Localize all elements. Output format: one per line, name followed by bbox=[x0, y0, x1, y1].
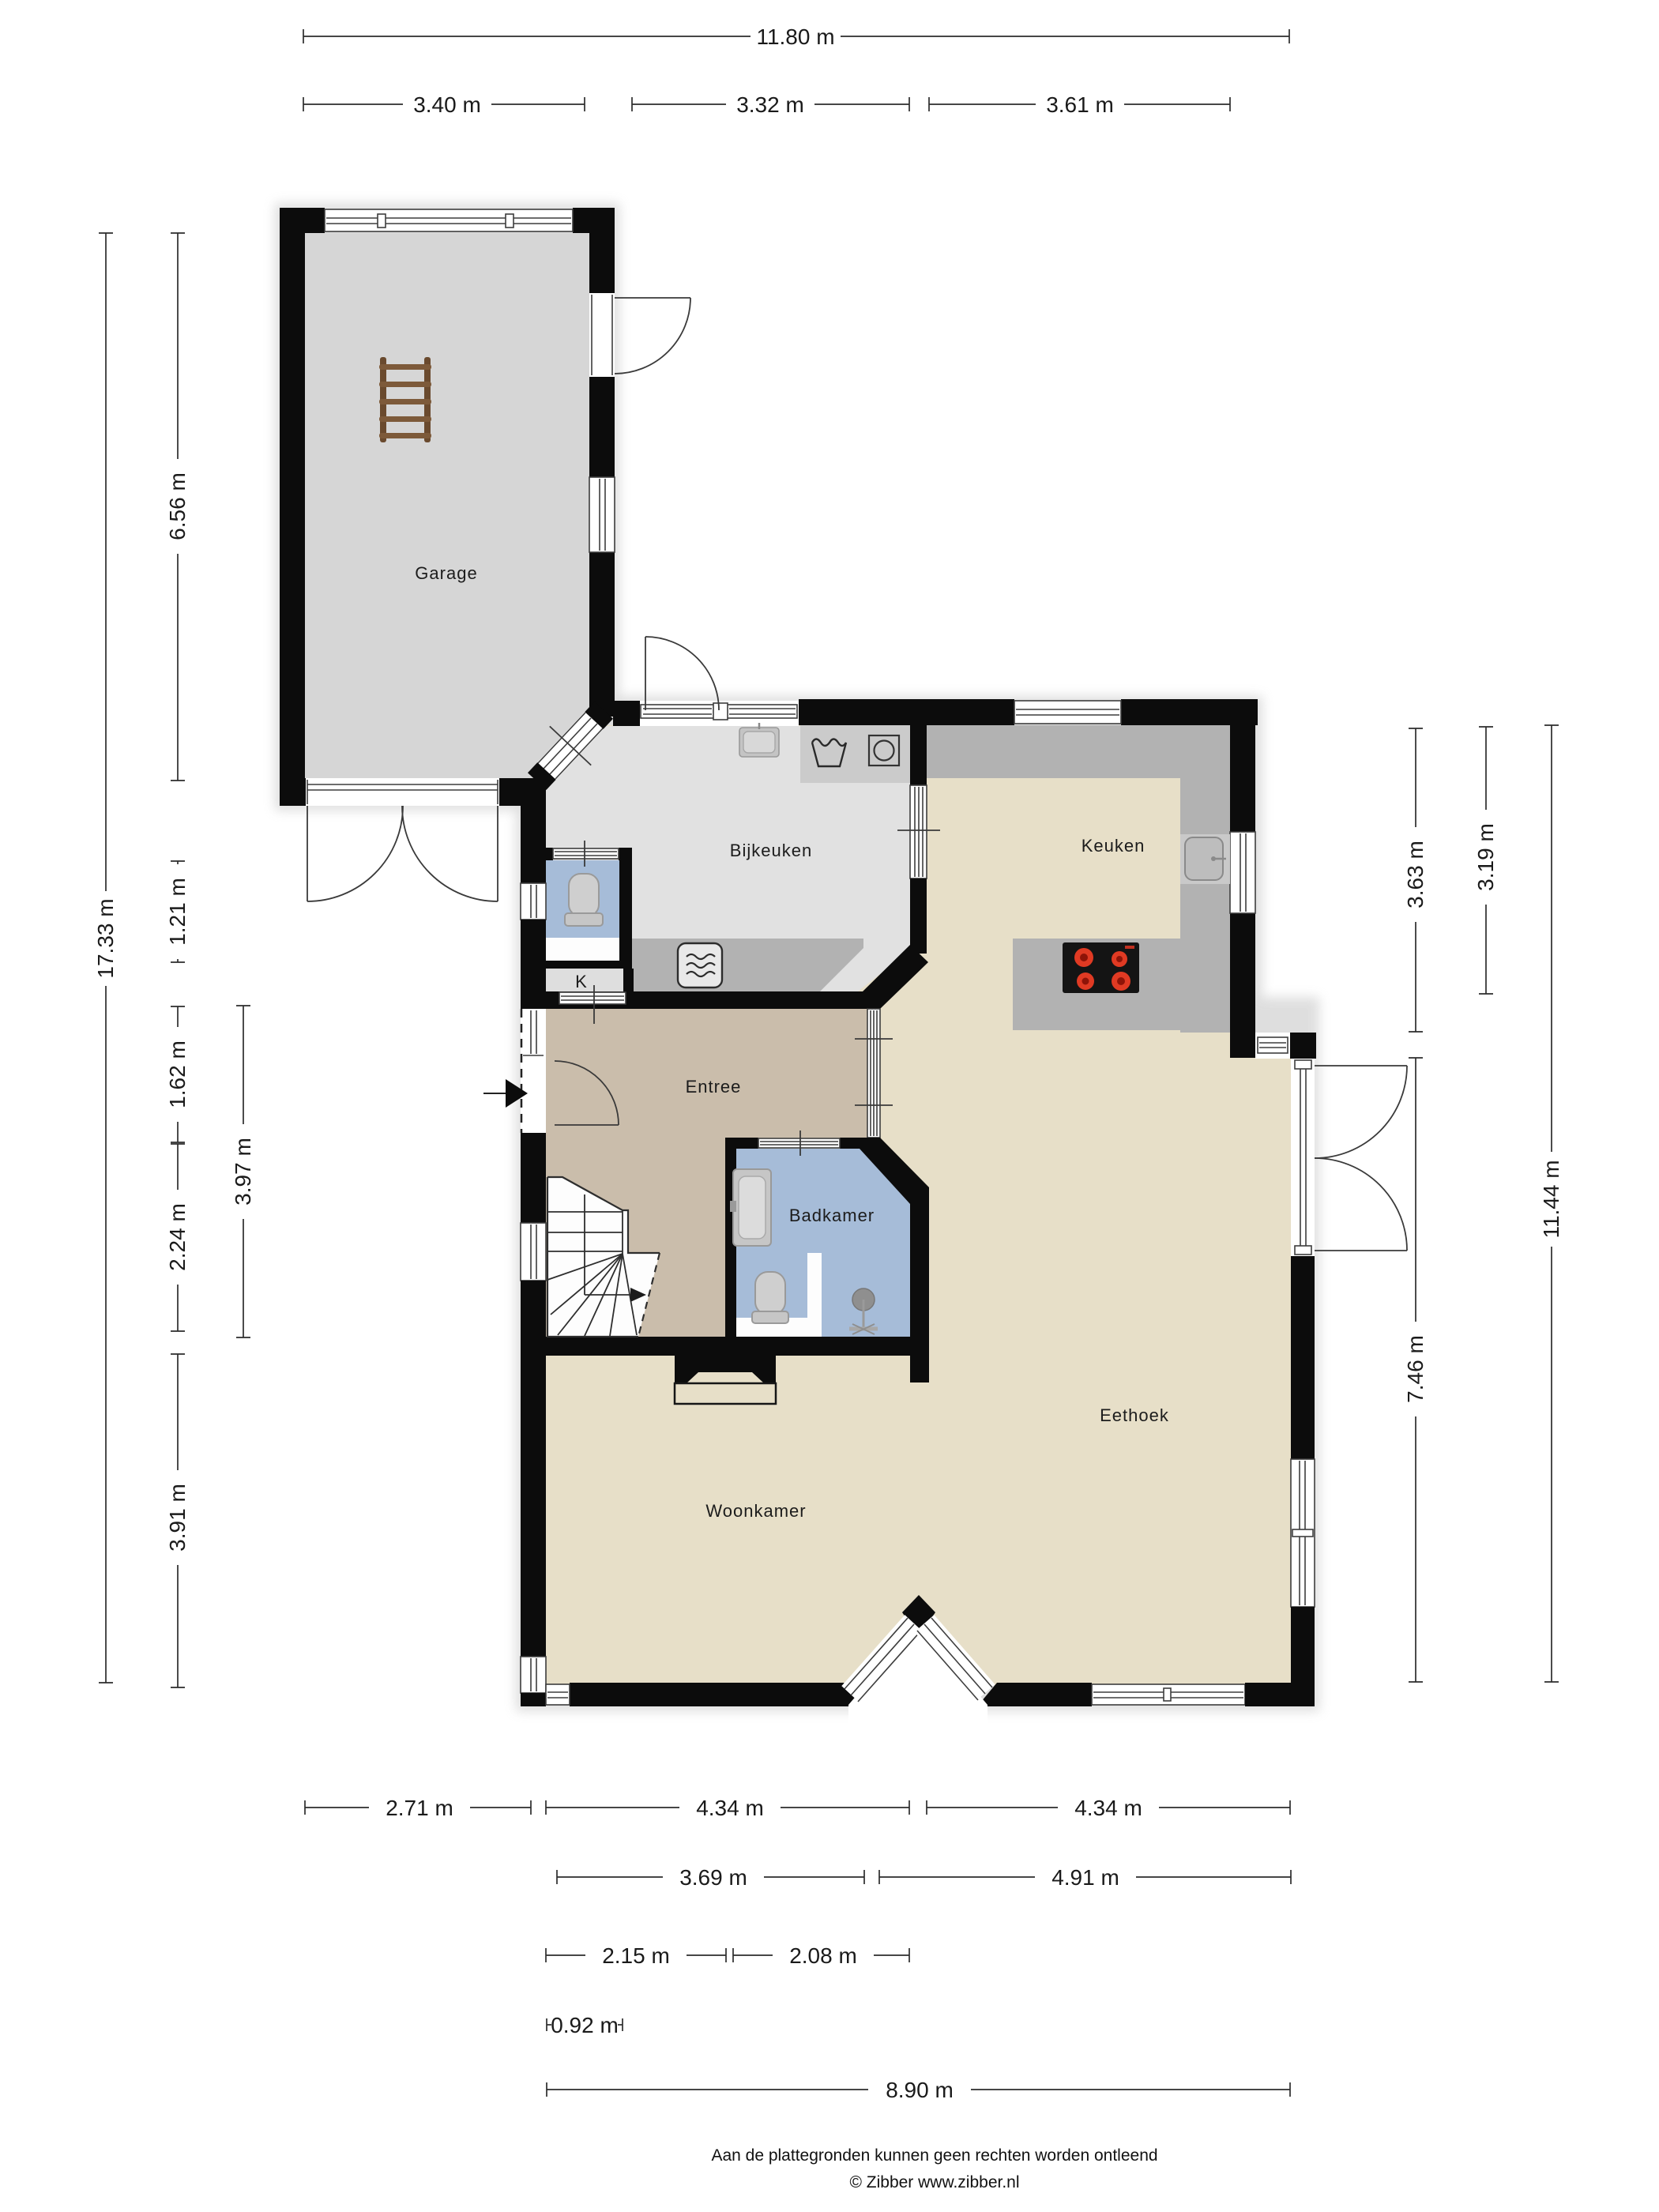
svg-text:2.24 m: 2.24 m bbox=[165, 1203, 190, 1271]
svg-text:6.56 m: 6.56 m bbox=[165, 472, 190, 540]
svg-text:1.62 m: 1.62 m bbox=[165, 1040, 190, 1108]
svg-text:4.34 m: 4.34 m bbox=[1074, 1796, 1142, 1820]
svg-text:3.91 m: 3.91 m bbox=[165, 1484, 190, 1552]
svg-text:11.80 m: 11.80 m bbox=[756, 24, 834, 49]
svg-text:Entree: Entree bbox=[686, 1077, 742, 1097]
svg-text:1.21 m: 1.21 m bbox=[165, 878, 190, 946]
svg-text:Keuken: Keuken bbox=[1082, 836, 1145, 856]
svg-text:Eethoek: Eethoek bbox=[1100, 1405, 1169, 1425]
svg-text:4.34 m: 4.34 m bbox=[696, 1796, 764, 1820]
svg-text:7.46 m: 7.46 m bbox=[1403, 1335, 1428, 1403]
svg-text:17.33 m: 17.33 m bbox=[93, 898, 118, 978]
svg-text:3.63 m: 3.63 m bbox=[1403, 841, 1428, 908]
svg-text:4.91 m: 4.91 m bbox=[1051, 1865, 1119, 1890]
svg-text:Badkamer: Badkamer bbox=[789, 1206, 875, 1225]
svg-text:0.92 m: 0.92 m bbox=[551, 2013, 619, 2037]
svg-text:11.44 m: 11.44 m bbox=[1539, 1160, 1563, 1238]
svg-text:© Zibber www.zibber.nl: © Zibber www.zibber.nl bbox=[849, 2173, 1019, 2191]
svg-text:K: K bbox=[575, 972, 588, 991]
svg-text:3.40 m: 3.40 m bbox=[413, 92, 481, 117]
svg-text:3.97 m: 3.97 m bbox=[231, 1138, 255, 1206]
svg-text:Garage: Garage bbox=[415, 563, 477, 583]
svg-text:2.71 m: 2.71 m bbox=[386, 1796, 453, 1820]
svg-text:8.90 m: 8.90 m bbox=[886, 2078, 954, 2102]
svg-text:2.15 m: 2.15 m bbox=[602, 1943, 670, 1968]
svg-text:2.08 m: 2.08 m bbox=[789, 1943, 857, 1968]
svg-text:Aan de plattegronden kunnen ge: Aan de plattegronden kunnen geen rechten… bbox=[711, 2146, 1157, 2165]
svg-text:3.61 m: 3.61 m bbox=[1046, 92, 1114, 117]
svg-text:Woonkamer: Woonkamer bbox=[705, 1501, 806, 1521]
svg-text:3.19 m: 3.19 m bbox=[1473, 823, 1498, 891]
svg-text:3.69 m: 3.69 m bbox=[679, 1865, 747, 1890]
svg-text:3.32 m: 3.32 m bbox=[736, 92, 804, 117]
svg-text:Bijkeuken: Bijkeuken bbox=[730, 841, 812, 860]
